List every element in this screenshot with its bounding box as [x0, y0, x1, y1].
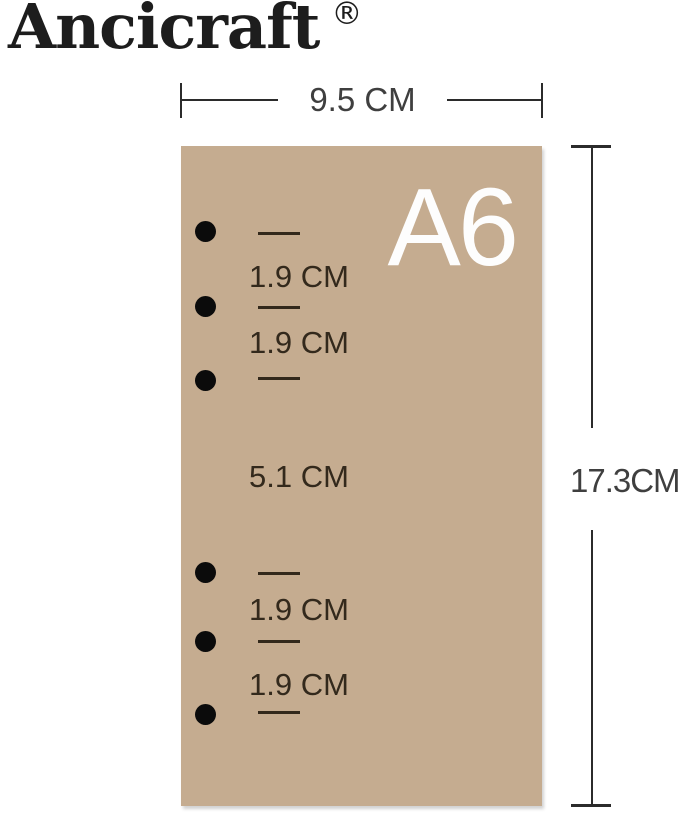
hole-spacing-label: 5.1 CM — [239, 459, 359, 495]
height-dim-line-bottom — [591, 530, 593, 806]
binder-hole — [195, 221, 216, 242]
binder-hole — [195, 296, 216, 317]
binder-hole — [195, 704, 216, 725]
hole-tick-mark — [258, 640, 300, 643]
hole-tick-mark — [258, 377, 300, 380]
binder-hole — [195, 562, 216, 583]
height-dim-label: 17.3CM — [570, 462, 679, 500]
width-dim-line-right — [447, 99, 541, 101]
hole-spacing-label: 1.9 CM — [239, 325, 359, 361]
height-dim-line-top — [591, 148, 593, 428]
product-dimension-diagram: Ancicraft® 9.5 CM A6 1.9 CM 1.9 CM 5.1 C… — [0, 0, 679, 813]
size-label: A6 — [387, 173, 516, 283]
binder-hole — [195, 631, 216, 652]
width-dim-tick-right — [541, 83, 543, 118]
hole-spacing-label: 1.9 CM — [239, 592, 359, 628]
height-dim-tick-bottom — [571, 804, 611, 807]
hole-tick-mark — [258, 572, 300, 575]
hole-tick-mark — [258, 232, 300, 235]
hole-spacing-label: 1.9 CM — [239, 667, 359, 703]
width-dim-label: 9.5 CM — [278, 81, 447, 119]
brand-logo: Ancicraft® — [8, 0, 362, 59]
hole-tick-mark — [258, 711, 300, 714]
binder-hole — [195, 370, 216, 391]
width-dim-line-left — [182, 99, 278, 101]
paper-sheet: A6 1.9 CM 1.9 CM 5.1 CM 1.9 CM 1.9 CM — [181, 146, 542, 806]
hole-spacing-label: 1.9 CM — [239, 259, 359, 295]
brand-name: Ancicraft — [8, 0, 319, 63]
registered-trademark-icon: ® — [331, 0, 362, 31]
hole-tick-mark — [258, 306, 300, 309]
